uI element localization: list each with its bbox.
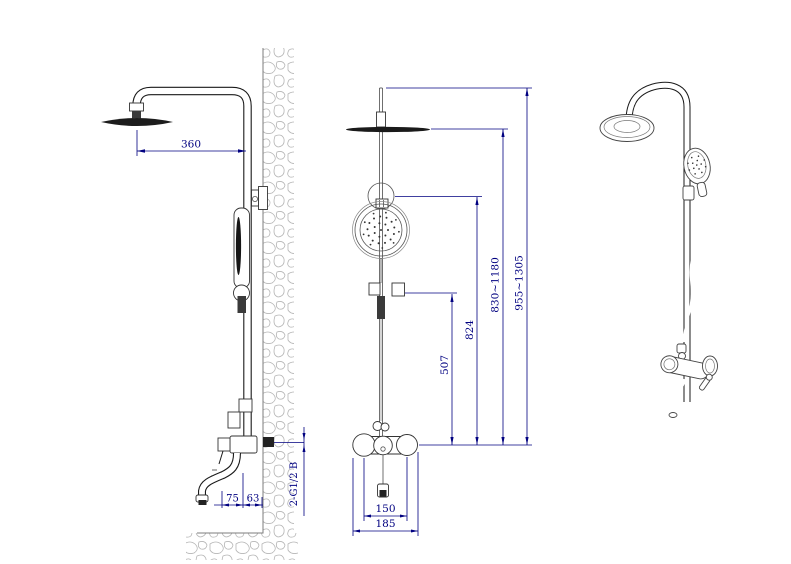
dim-label-arm-reach: 360	[181, 139, 201, 151]
hand-shower-side	[234, 208, 250, 313]
left-inlet-flange	[353, 434, 375, 456]
mixer-valve-front	[353, 422, 418, 498]
dim-label-body-width: 185	[375, 518, 395, 530]
dim-arm-reach: 360	[137, 130, 246, 156]
grip-front	[377, 296, 385, 319]
rain-head-3d	[600, 115, 654, 142]
wall-hatch	[263, 48, 294, 533]
hand-shower-face-edge	[236, 217, 241, 275]
mixer-valve-side	[196, 399, 274, 505]
wall-face-line	[197, 48, 263, 533]
valve-center-front	[374, 436, 393, 455]
holder-ring-front	[368, 183, 394, 209]
technical-drawing: 360 75 63 2-G1/2 B	[0, 0, 791, 564]
head-connector-front	[377, 112, 386, 127]
hand-shower-front	[353, 202, 410, 284]
dim-label-inlet-spacing: 150	[375, 503, 395, 515]
slider-bracket-front	[369, 283, 405, 421]
tub-spout-3d	[668, 379, 684, 418]
head-connector	[130, 103, 144, 111]
dim-holder-height: 824	[464, 197, 479, 445]
perspective-view	[600, 85, 718, 417]
wall-bracket-side	[252, 187, 268, 210]
rain-head-side	[101, 103, 173, 126]
valve-cap-side	[218, 438, 230, 451]
dim-label-inlet-thread: 2-G1/2 B	[289, 462, 300, 506]
valve-handle-side	[219, 451, 223, 464]
dim-label-spout-projection: 75	[226, 494, 239, 505]
wall-inlet-fitting	[263, 437, 274, 447]
spray-dots-front	[363, 212, 400, 249]
dim-slider-height: 507	[439, 294, 454, 445]
floor-hatch	[186, 533, 298, 560]
holder-3d	[683, 186, 694, 200]
shower-drawing-canvas: 360 75 63 2-G1/2 B	[0, 0, 791, 564]
slider-grip	[238, 296, 247, 313]
valve-body-side	[230, 436, 257, 453]
dim-label-overall-height-range: 955~1305	[514, 255, 526, 311]
side-view: 360 75 63 2-G1/2 B	[101, 48, 306, 560]
dim-label-slider-height: 507	[439, 355, 451, 375]
diverter-3d	[677, 344, 686, 360]
head-joint	[132, 111, 141, 118]
right-inlet-flange	[397, 435, 418, 456]
dim-label-head-height-range: 830~1180	[490, 257, 502, 313]
front-view: 507 824 830~1180 955~1305	[346, 88, 532, 536]
dim-label-holder-height: 824	[464, 320, 476, 340]
rain-head-front	[346, 127, 430, 132]
dim-head-height-range: 830~1180	[490, 129, 505, 445]
dim-overall-height-range: 955~1305	[514, 88, 529, 445]
head-plate	[101, 118, 173, 126]
dim-label-spout-offset: 63	[247, 494, 260, 505]
extension-lines	[386, 88, 532, 445]
